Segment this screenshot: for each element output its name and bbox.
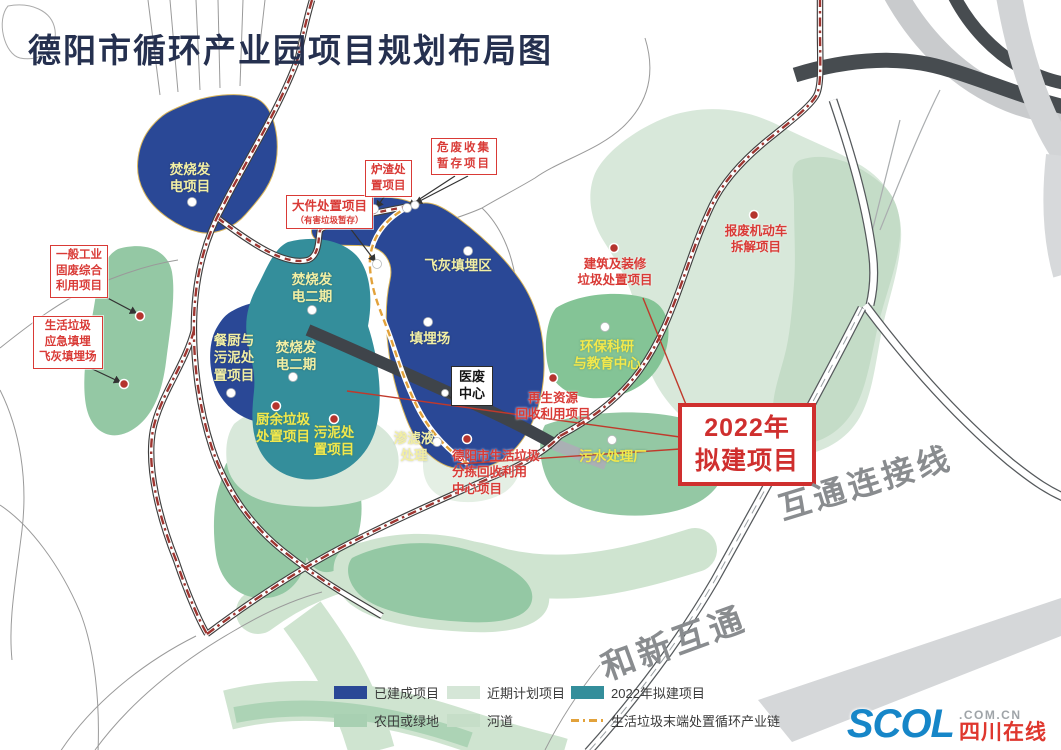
legend-item-2022: 2022年拟建项目 xyxy=(571,683,780,702)
scol-logo-site: 四川在线 xyxy=(959,722,1047,744)
scol-logo-text: SCOL xyxy=(847,705,954,743)
legend-swatch-farmland xyxy=(334,714,367,727)
legend-item-near-term: 近期计划项目 xyxy=(447,683,571,702)
map-legend: 已建成项目 近期计划项目 2022年拟建项目 农田或绿地 河道 生活垃圾末端处置… xyxy=(334,683,780,730)
area-label-food-waste: 厨余垃圾 处置项目 xyxy=(256,411,310,446)
label-sorting-center: 德阳市生活垃圾 分拣回收利用 中心项目 xyxy=(452,448,540,497)
area-label-env-research: 环保科研 与教育中心 xyxy=(573,338,641,373)
label-construction-waste: 建筑及装修 垃圾处置项目 xyxy=(577,256,652,289)
map-graphics xyxy=(0,0,1061,750)
legend-label: 生活垃圾末端处置循环产业链 xyxy=(611,711,780,730)
legend-item-built: 已建成项目 xyxy=(334,683,447,702)
legend-item-farmland: 农田或绿地 xyxy=(334,711,447,730)
legend-item-river: 河道 xyxy=(447,711,571,730)
area-label-incineration-phase2-upper: 焚烧发 电二期 xyxy=(292,271,333,306)
area-label-kitchen-sludge: 餐厨与 污泥处 置项目 xyxy=(214,332,255,384)
area-label-incineration-power: 焚烧发 电项目 xyxy=(170,161,211,196)
legend-label: 已建成项目 xyxy=(374,683,439,702)
label-medical-waste-center: 医废 中心 xyxy=(451,366,493,406)
label-emergency-landfill: 生活垃圾 应急填埋 飞灰填埋场 xyxy=(33,316,103,369)
label-scrap-vehicle: 报废机动车 拆解项目 xyxy=(725,223,788,256)
legend-label: 2022年拟建项目 xyxy=(611,683,705,702)
area-label-incineration-phase2-lower: 焚烧发 电二期 xyxy=(276,339,317,374)
bulky-waste-title: 大件处置项目 xyxy=(292,198,367,215)
scol-logo: SCOL .COM.CN 四川在线 xyxy=(847,705,1047,744)
bulky-waste-subtitle: （有害垃圾暂存） xyxy=(292,215,367,226)
legend-swatch-built xyxy=(334,686,367,699)
planning-map: 德阳市循环产业园项目规划布局图 焚烧发 电项目 焚烧发 电二期 焚烧发 电二期 … xyxy=(0,0,1061,750)
area-label-landfill: 填埋场 xyxy=(410,330,451,347)
legend-dash-sample xyxy=(571,719,604,722)
legend-swatch-near-term xyxy=(447,686,480,699)
legend-label: 河道 xyxy=(487,711,513,730)
label-slag-disposal: 炉渣处 置项目 xyxy=(365,160,412,197)
area-label-leachate: 渗滤液 处理 xyxy=(394,430,435,465)
legend-swatch-2022 xyxy=(571,686,604,699)
area-label-sewage-plant: 污水处理厂 xyxy=(579,448,647,465)
legend-swatch-river xyxy=(447,714,480,727)
legend-item-waste-chain: 生活垃圾末端处置循环产业链 xyxy=(571,711,780,730)
label-bulky-waste: 大件处置项目 （有害垃圾暂存） xyxy=(286,195,373,229)
area-label-sludge: 污泥处 置项目 xyxy=(314,424,355,459)
label-renewable-resource: 再生资源 回收利用项目 xyxy=(515,390,590,423)
scol-logo-domain: .COM.CN xyxy=(959,708,1047,722)
page-title: 德阳市循环产业园项目规划布局图 xyxy=(28,24,553,72)
callout-2022-projects: 2022年 拟建项目 xyxy=(678,403,816,486)
area-label-fly-ash: 飞灰填埋区 xyxy=(424,257,492,274)
label-general-industrial: 一般工业 固废综合 利用项目 xyxy=(50,245,108,298)
label-hazardous-waste: 危废收集 暂存项目 xyxy=(431,138,497,175)
legend-label: 农田或绿地 xyxy=(374,711,439,730)
legend-label: 近期计划项目 xyxy=(487,683,565,702)
